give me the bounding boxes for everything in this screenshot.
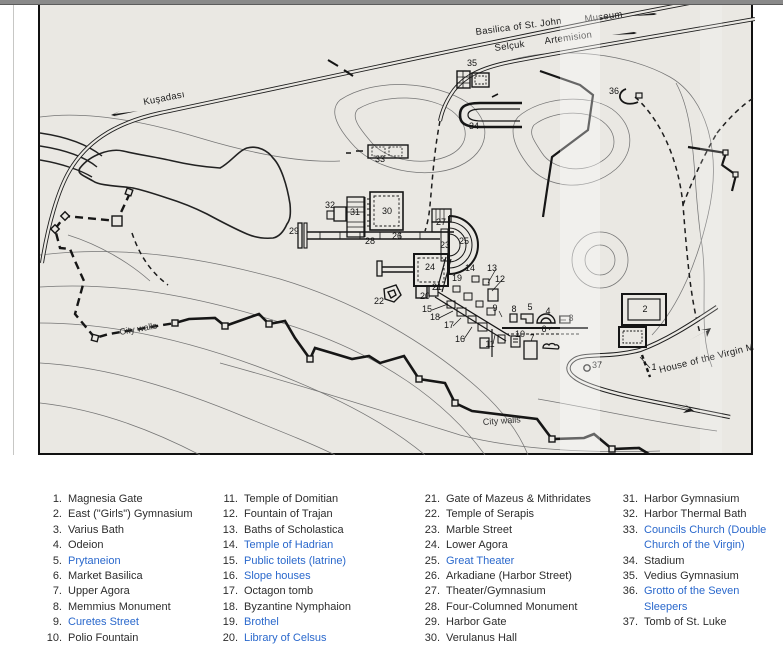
legend-item: 6.Market Basilica	[34, 569, 218, 584]
map-marker-16: 16	[455, 334, 465, 344]
legend-item-number: 5.	[34, 554, 62, 569]
legend-item-number: 27.	[412, 584, 440, 599]
legend-item-number: 29.	[412, 615, 440, 630]
legend-item: 24.Lower Agora	[412, 538, 631, 553]
map-marker-1: 1	[651, 362, 656, 372]
legend-column-3: 21.Gate of Mazeus & Mithridates22.Temple…	[412, 492, 631, 646]
legend-item-label: Harbor Gymnasium	[644, 492, 782, 507]
legend-item-link[interactable]: Library of Celsus	[244, 631, 409, 646]
legend-item-number: 34.	[610, 554, 638, 569]
legend-item: 17.Octagon tomb	[210, 584, 409, 599]
legend-item: 2.East ("Girls") Gymnasium	[34, 507, 218, 522]
map-marker-5: 5	[527, 302, 532, 312]
map-marker-6: 6	[541, 324, 546, 334]
building-harbor-gate	[298, 223, 307, 248]
legend-item: 22.Temple of Serapis	[412, 507, 631, 522]
artemision-arrow-icon	[612, 30, 637, 36]
building-harbor-gymnasium	[347, 197, 370, 237]
legend-item: 9.Curetes Street	[34, 615, 218, 630]
building-tomb-st-luke	[584, 365, 590, 371]
legend-item-number: 30.	[412, 631, 440, 646]
legend-item: 18.Byzantine Nymphaion	[210, 600, 409, 615]
legend-item-number: 24.	[412, 538, 440, 553]
legend-column-2: 11.Temple of Domitian12.Fountain of Traj…	[210, 492, 409, 646]
buildings	[298, 71, 666, 377]
legend-item-number: 14.	[210, 538, 238, 553]
legend-item: 31.Harbor Gymnasium	[610, 492, 782, 507]
harbor-basin	[40, 133, 290, 238]
building-prytaneion	[521, 314, 533, 323]
legend-item: 37.Tomb of St. Luke	[610, 615, 782, 630]
map-marker-30: 30	[382, 206, 392, 216]
legend-item: 26.Arkadiane (Harbor Street)	[412, 569, 631, 584]
wall-towers	[51, 188, 615, 452]
legend-item-number: 9.	[34, 615, 62, 630]
legend-item-label: Octagon tomb	[244, 584, 409, 599]
city-walls	[51, 188, 652, 455]
map-marker-35: 35	[467, 58, 477, 68]
legend-item-label: Stadium	[644, 554, 782, 569]
legend-item: 32.Harbor Thermal Bath	[610, 507, 782, 522]
dashed-paths	[132, 97, 755, 333]
map-marker-33: 33	[375, 154, 385, 164]
legend-item-number: 16.	[210, 569, 238, 584]
legend-item: 29.Harbor Gate	[412, 615, 631, 630]
legend-item: 1.Magnesia Gate	[34, 492, 218, 507]
map-marker-21: 21	[432, 282, 442, 292]
legend-item-number: 35.	[610, 569, 638, 584]
kusadasi-road-label: Kuşadası	[142, 89, 185, 108]
legend-item-label: Varius Bath	[68, 523, 218, 538]
legend-item-number: 23.	[412, 523, 440, 538]
legend-item: 11.Temple of Domitian	[210, 492, 409, 507]
legend-item-label: Arkadiane (Harbor Street)	[446, 569, 631, 584]
map-marker-10: 10	[515, 329, 525, 339]
building-memmius-monument	[510, 314, 517, 322]
legend-item-link[interactable]: Curetes Street	[68, 615, 218, 630]
map-marker-12: 12	[495, 274, 505, 284]
map-legend: 1.Magnesia Gate2.East ("Girls") Gymnasiu…	[0, 489, 783, 647]
road-kusadasi-selcuk	[42, 5, 755, 263]
legend-item-label: East ("Girls") Gymnasium	[68, 507, 218, 522]
map-marker-26: 26	[392, 231, 402, 241]
map-marker-36: 36	[609, 86, 619, 96]
street-arkadiane	[307, 232, 454, 239]
kusadasi-arrow-icon	[111, 111, 138, 118]
legend-item-label: Temple of Serapis	[446, 507, 631, 522]
legend-item-number: 12.	[210, 507, 238, 522]
legend-item-label: Theater/Gymnasium	[446, 584, 631, 599]
map-marker-17: 17	[444, 320, 454, 330]
building-magnesia-gate	[642, 355, 650, 377]
legend-item-number: 4.	[34, 538, 62, 553]
legend-item-label: Odeion	[68, 538, 218, 553]
map-canvas: Basilica of St. John Museum Selçuk Artem…	[40, 5, 755, 455]
legend-item-label: Four-Columned Monument	[446, 600, 631, 615]
page-left-rule	[13, 5, 14, 455]
map-marker-8: 8	[511, 304, 516, 314]
legend-item: 5.Prytaneion	[34, 554, 218, 569]
map-marker-3: 3	[568, 313, 573, 323]
legend-item-number: 20.	[210, 631, 238, 646]
legend-item-number: 28.	[412, 600, 440, 615]
legend-item-link[interactable]: Prytaneion	[68, 554, 218, 569]
museum-road-label: Museum	[584, 9, 623, 25]
legend-item: 12.Fountain of Trajan	[210, 507, 409, 522]
legend-item-number: 37.	[610, 615, 638, 630]
legend-item-link[interactable]: Slope houses	[244, 569, 409, 584]
legend-item-number: 21.	[412, 492, 440, 507]
map-marker-11: 11	[485, 339, 494, 349]
legend-item: 36.Grotto of the Seven Sleepers	[610, 584, 782, 615]
legend-item-label: Byzantine Nymphaion	[244, 600, 409, 615]
legend-item: 4.Odeion	[34, 538, 218, 553]
legend-item-label: Market Basilica	[68, 569, 218, 584]
legend-item: 34.Stadium	[610, 554, 782, 569]
legend-item-link[interactable]: Great Theater	[446, 554, 631, 569]
legend-item: 3.Varius Bath	[34, 523, 218, 538]
legend-column-4: 31.Harbor Gymnasium32.Harbor Thermal Bat…	[610, 492, 782, 631]
legend-item-label: Gate of Mazeus & Mithridates	[446, 492, 631, 507]
legend-item-link[interactable]: Brothel	[244, 615, 409, 630]
legend-item: 13.Baths of Scholastica	[210, 523, 409, 538]
map-marker-28: 28	[365, 236, 375, 246]
legend-item: 16.Slope houses	[210, 569, 409, 584]
legend-item-number: 13.	[210, 523, 238, 538]
building-east-gymnasium	[619, 294, 666, 347]
legend-item-number: 31.	[610, 492, 638, 507]
legend-item: 20.Library of Celsus	[210, 631, 409, 646]
legend-item-number: 8.	[34, 600, 62, 615]
legend-item-number: 11.	[210, 492, 238, 507]
legend-item-label: Upper Agora	[68, 584, 218, 599]
map-marker-19: 19	[452, 273, 462, 283]
legend-item-number: 32.	[610, 507, 638, 522]
map-marker-layer: 1234567891011121314151617181920212223242…	[289, 58, 657, 372]
legend-item-number: 26.	[412, 569, 440, 584]
building-fountain	[543, 344, 559, 350]
map-marker-2: 2	[642, 304, 647, 314]
map-marker-9: 9	[492, 303, 497, 313]
legend-item-number: 22.	[412, 507, 440, 522]
legend-item-link[interactable]: Public toilets (latrine)	[244, 554, 409, 569]
legend-item: 30.Verulanus Hall	[412, 631, 631, 646]
legend-item: 19.Brothel	[210, 615, 409, 630]
legend-item-label: Temple of Domitian	[244, 492, 409, 507]
legend-item-number: 6.	[34, 569, 62, 584]
legend-item-label: Fountain of Trajan	[244, 507, 409, 522]
legend-item-number: 7.	[34, 584, 62, 599]
map-marker-13: 13	[487, 263, 497, 273]
ephesus-map: Basilica of St. John Museum Selçuk Artem…	[38, 5, 753, 455]
map-marker-14: 14	[465, 263, 475, 273]
map-marker-37: 37	[592, 360, 602, 370]
legend-item: 10.Polio Fountain	[34, 631, 218, 646]
legend-item: 21.Gate of Mazeus & Mithridates	[412, 492, 631, 507]
legend-item-label: Polio Fountain	[68, 631, 218, 646]
legend-item-label: Tomb of St. Luke	[644, 615, 782, 630]
map-marker-23: 23	[440, 240, 450, 250]
map-marker-31: 31	[350, 207, 360, 217]
legend-item: 15.Public toilets (latrine)	[210, 554, 409, 569]
legend-item: 7.Upper Agora	[34, 584, 218, 599]
legend-item-link[interactable]: Councils Church (Double Church of the Vi…	[644, 523, 782, 554]
legend-item-label: Harbor Gate	[446, 615, 631, 630]
legend-item-number: 10.	[34, 631, 62, 646]
map-marker-25: 25	[459, 236, 469, 246]
legend-item: 14.Temple of Hadrian	[210, 538, 409, 553]
legend-item-number: 19.	[210, 615, 238, 630]
legend-item-label: Baths of Scholastica	[244, 523, 409, 538]
legend-item-number: 2.	[34, 507, 62, 522]
legend-item: 28.Four-Columned Monument	[412, 600, 631, 615]
map-marker-34: 34	[469, 121, 479, 131]
legend-item-label: Magnesia Gate	[68, 492, 218, 507]
legend-item-label: Vedius Gymnasium	[644, 569, 782, 584]
legend-item-link[interactable]: Grotto of the Seven Sleepers	[644, 584, 782, 615]
legend-item: 25.Great Theater	[412, 554, 631, 569]
map-marker-18: 18	[430, 312, 440, 322]
legend-column-1: 1.Magnesia Gate2.East ("Girls") Gymnasiu…	[34, 492, 218, 646]
building-temple-serapis	[384, 285, 401, 302]
legend-item-number: 33.	[610, 523, 638, 554]
legend-item: 35.Vedius Gymnasium	[610, 569, 782, 584]
legend-item-number: 25.	[412, 554, 440, 569]
map-marker-20: 20	[420, 291, 430, 301]
legend-item: 33.Councils Church (Double Church of the…	[610, 523, 782, 554]
city-walls-west-label: City walls	[119, 320, 159, 337]
legend-item-label: Verulanus Hall	[446, 631, 631, 646]
legend-item: 8.Memmius Monument	[34, 600, 218, 615]
legend-item-number: 17.	[210, 584, 238, 599]
map-marker-32: 32	[325, 200, 335, 210]
legend-item-link[interactable]: Temple of Hadrian	[244, 538, 409, 553]
map-marker-4: 4	[545, 306, 550, 316]
map-marker-29: 29	[289, 226, 299, 236]
legend-item-number: 36.	[610, 584, 638, 615]
map-marker-24: 24	[425, 262, 435, 272]
map-marker-27: 27	[436, 217, 446, 227]
legend-item-label: Harbor Thermal Bath	[644, 507, 782, 522]
building-grotto-seven-sleepers	[620, 89, 642, 104]
city-walls-south-label: City walls	[482, 414, 521, 427]
legend-item-number: 1.	[34, 492, 62, 507]
legend-item-number: 15.	[210, 554, 238, 569]
legend-item-label: Memmius Monument	[68, 600, 218, 615]
legend-item-number: 3.	[34, 523, 62, 538]
map-marker-22: 22	[374, 296, 384, 306]
legend-item-label: Marble Street	[446, 523, 631, 538]
building-upper-agora-hall	[524, 341, 537, 359]
legend-item-number: 18.	[210, 600, 238, 615]
legend-item-label: Lower Agora	[446, 538, 631, 553]
map-marker-7: 7	[529, 333, 534, 343]
legend-item: 27.Theater/Gymnasium	[412, 584, 631, 599]
legend-item: 23.Marble Street	[412, 523, 631, 538]
